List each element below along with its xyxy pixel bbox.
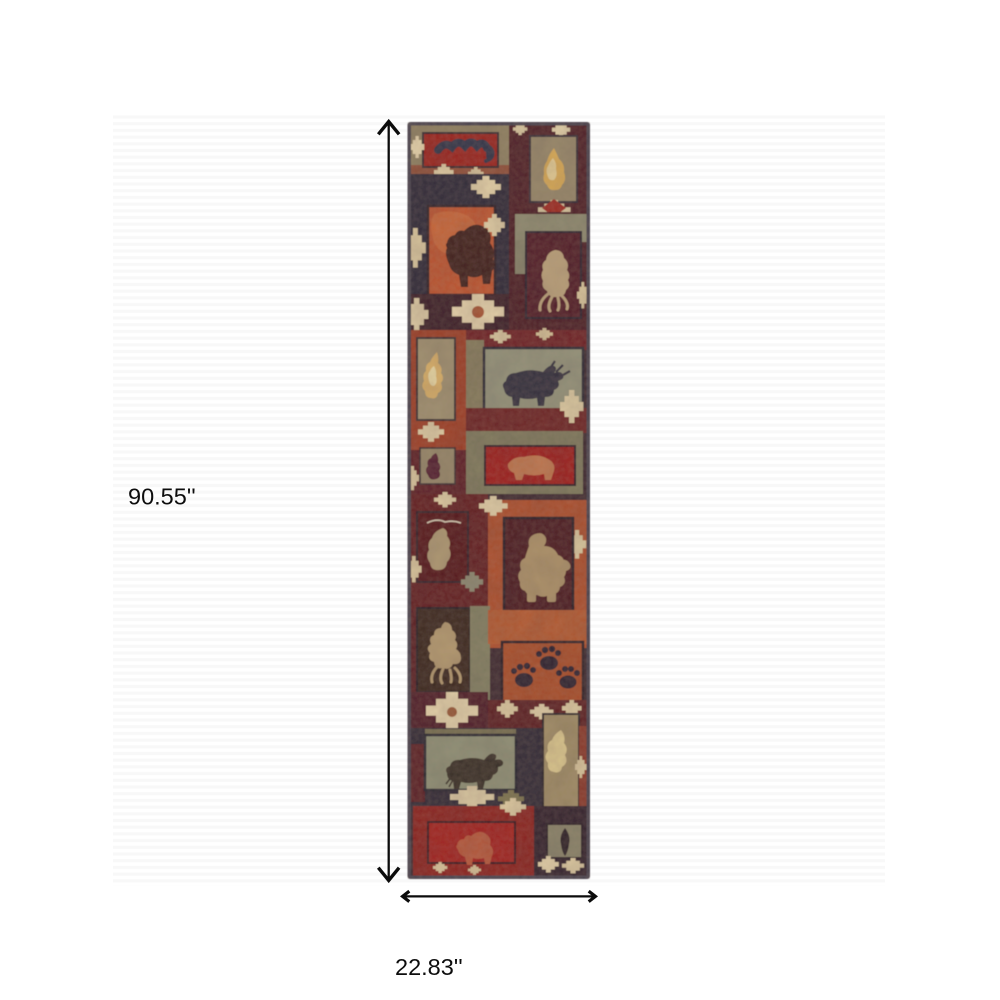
svg-text:90.55'': 90.55'' (128, 484, 196, 510)
svg-text:22.83'': 22.83'' (395, 954, 463, 980)
